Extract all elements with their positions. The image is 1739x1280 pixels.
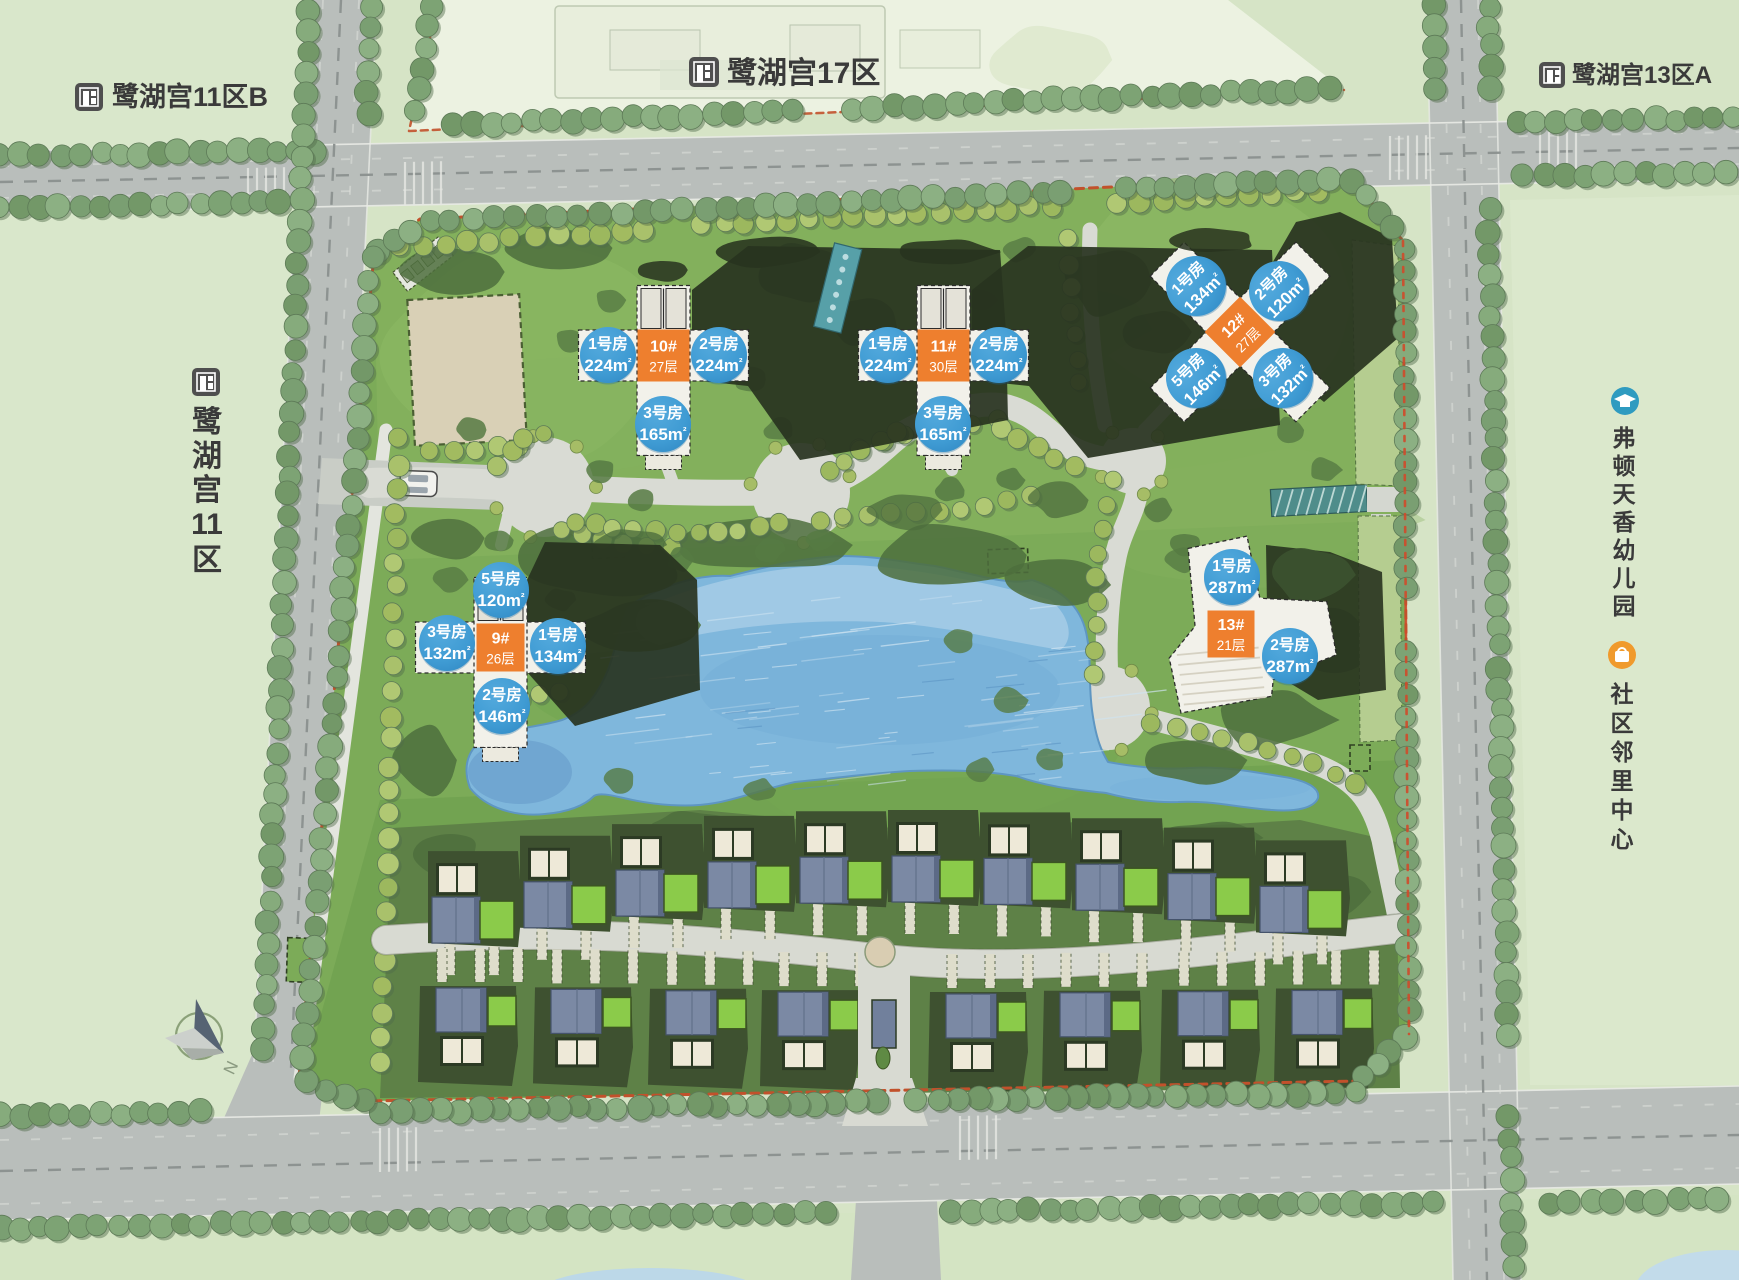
svg-text:1号房: 1号房 <box>538 625 578 644</box>
svg-text:10#: 10# <box>650 339 677 356</box>
svg-text:5号房: 5号房 <box>481 569 521 588</box>
svg-text:鹭湖宫17区: 鹭湖宫17区 <box>727 56 880 90</box>
svg-text:3号房: 3号房 <box>427 622 467 641</box>
svg-text:224m²: 224m² <box>975 356 1022 375</box>
svg-text:弗: 弗 <box>1613 425 1636 451</box>
svg-text:3号房: 3号房 <box>923 403 963 422</box>
svg-text:21层: 21层 <box>1217 638 1246 653</box>
svg-text:134m²: 134m² <box>534 647 581 666</box>
svg-text:287m²: 287m² <box>1266 657 1313 676</box>
svg-text:鹭湖宫13区A: 鹭湖宫13区A <box>1572 61 1712 89</box>
svg-text:146m²: 146m² <box>478 707 525 726</box>
svg-text:顿: 顿 <box>1613 453 1636 479</box>
svg-text:鹭湖宫11区B: 鹭湖宫11区B <box>112 81 268 112</box>
svg-text:120m²: 120m² <box>477 591 524 610</box>
svg-text:30层: 30层 <box>929 360 958 375</box>
svg-text:1号房: 1号房 <box>588 334 628 353</box>
svg-text:湖: 湖 <box>192 440 222 473</box>
svg-text:2号房: 2号房 <box>699 334 739 353</box>
svg-text:224m²: 224m² <box>584 356 631 375</box>
svg-text:1号房: 1号房 <box>1212 556 1252 575</box>
svg-text:165m²: 165m² <box>919 425 966 444</box>
svg-text:3号房: 3号房 <box>643 403 683 422</box>
svg-text:区: 区 <box>192 544 222 577</box>
svg-text:224m²: 224m² <box>864 356 911 375</box>
svg-text:224m²: 224m² <box>695 356 742 375</box>
svg-text:邻: 邻 <box>1611 739 1634 765</box>
svg-text:165m²: 165m² <box>639 425 686 444</box>
svg-text:26层: 26层 <box>486 652 515 667</box>
svg-text:幼: 幼 <box>1613 537 1636 563</box>
svg-text:儿: 儿 <box>1613 565 1636 591</box>
svg-text:区: 区 <box>1611 710 1634 736</box>
svg-text:香: 香 <box>1613 509 1637 535</box>
svg-text:宫: 宫 <box>192 473 222 507</box>
svg-text:2号房: 2号房 <box>979 334 1019 353</box>
svg-text:中: 中 <box>1611 797 1634 823</box>
svg-text:11: 11 <box>191 508 223 541</box>
svg-text:2号房: 2号房 <box>1270 635 1310 654</box>
svg-text:11#: 11# <box>931 339 957 356</box>
svg-text:1号房: 1号房 <box>868 334 908 353</box>
svg-text:鹭: 鹭 <box>192 406 223 439</box>
svg-text:13#: 13# <box>1218 617 1245 634</box>
svg-text:里: 里 <box>1611 768 1634 794</box>
svg-text:132m²: 132m² <box>423 644 470 663</box>
svg-text:园: 园 <box>1613 593 1636 619</box>
svg-text:心: 心 <box>1611 826 1634 852</box>
svg-text:27层: 27层 <box>649 360 678 375</box>
svg-text:9#: 9# <box>492 631 510 648</box>
svg-text:287m²: 287m² <box>1208 578 1255 597</box>
svg-text:天: 天 <box>1613 481 1637 507</box>
svg-text:社: 社 <box>1611 681 1634 707</box>
svg-text:2号房: 2号房 <box>482 685 522 704</box>
